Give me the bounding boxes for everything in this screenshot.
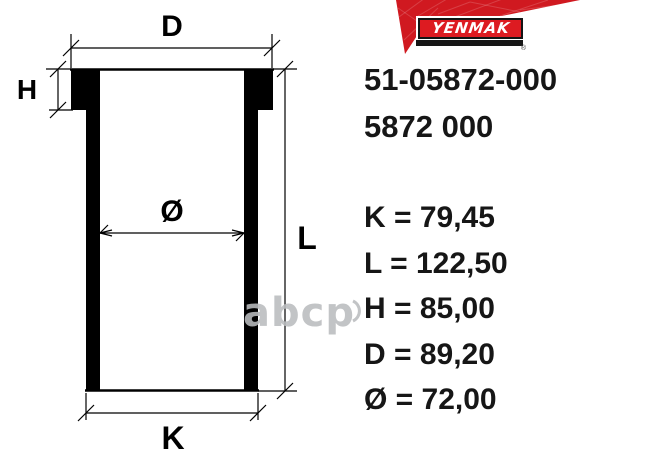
watermark-text: abcp xyxy=(243,290,355,336)
liner-outline xyxy=(70,70,274,391)
flange-left xyxy=(71,69,100,110)
dim-l xyxy=(258,61,297,399)
dim-k xyxy=(78,393,266,421)
dim-label-l: L xyxy=(297,220,317,256)
dim-label-k: K xyxy=(161,420,184,456)
wall-left xyxy=(86,108,100,391)
dim-label-h: H xyxy=(17,74,37,105)
dim-label-d: D xyxy=(161,10,183,43)
liner-section-fill xyxy=(71,69,273,391)
liner-cross-section-diagram: D H Ø L K xyxy=(0,0,650,457)
wall-right xyxy=(244,108,258,391)
dim-label-bore: Ø xyxy=(160,195,183,228)
flange-right xyxy=(244,69,273,110)
